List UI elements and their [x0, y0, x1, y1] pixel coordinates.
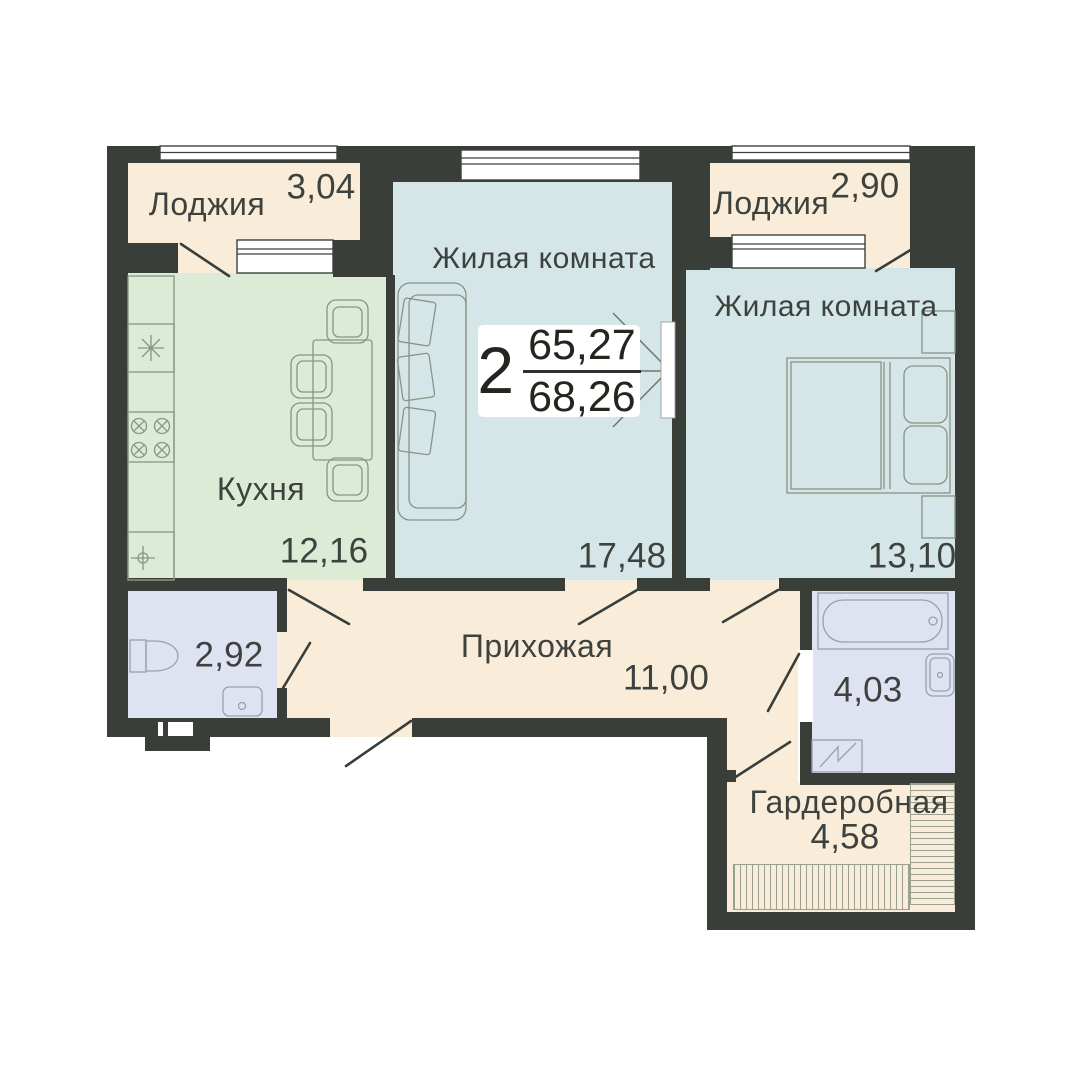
washbasin-icon: [926, 654, 954, 696]
washbasin-icon: [223, 687, 262, 716]
room-label-loggia-right: Лоджия: [713, 187, 829, 219]
kitchen-sink-icon: [131, 546, 155, 570]
room-label-living-center: Жилая комната: [432, 244, 655, 274]
room-area-loggia-left: 3,04: [287, 170, 356, 205]
rooms-count: 2: [477, 341, 514, 400]
room-label-wardrobe: Гардеробная: [749, 786, 948, 818]
total-area-value: 68,26: [528, 373, 636, 419]
room-label-kitchen: Кухня: [217, 473, 305, 505]
toilet-icon: [130, 640, 178, 672]
room-area-living-right: 13,10: [868, 539, 957, 574]
floor-plan: Лоджия 3,04 Кухня 12,16 Жилая комната 17…: [0, 0, 1081, 1080]
room-area-wardrobe: 4,58: [811, 820, 880, 855]
sofa-icon: [397, 283, 466, 520]
room-area-wc: 2,92: [195, 638, 264, 673]
bathtub-icon: [818, 593, 948, 649]
room-area-living-center: 17,48: [578, 539, 667, 574]
stove-icon: [132, 419, 170, 458]
bed-icon: [787, 311, 955, 538]
washing-machine-icon: [812, 740, 862, 772]
room-area-kitchen: 12,16: [280, 534, 369, 569]
room-area-bathroom: 4,03: [834, 673, 903, 708]
apartment-summary-badge: 2 65,27 68,26: [478, 325, 640, 417]
room-label-living-right: Жилая комната: [714, 292, 937, 322]
cooker-hood-icon: [138, 335, 164, 361]
kitchen-counter: [128, 276, 174, 580]
room-label-loggia-left: Лоджия: [149, 188, 265, 220]
room-label-hallway: Прихожая: [461, 630, 613, 662]
area-fraction: 65,27 68,26: [523, 324, 641, 419]
room-area-hallway: 11,00: [623, 661, 709, 696]
room-area-loggia-right: 2,90: [831, 169, 900, 204]
living-area-value: 65,27: [523, 324, 641, 373]
